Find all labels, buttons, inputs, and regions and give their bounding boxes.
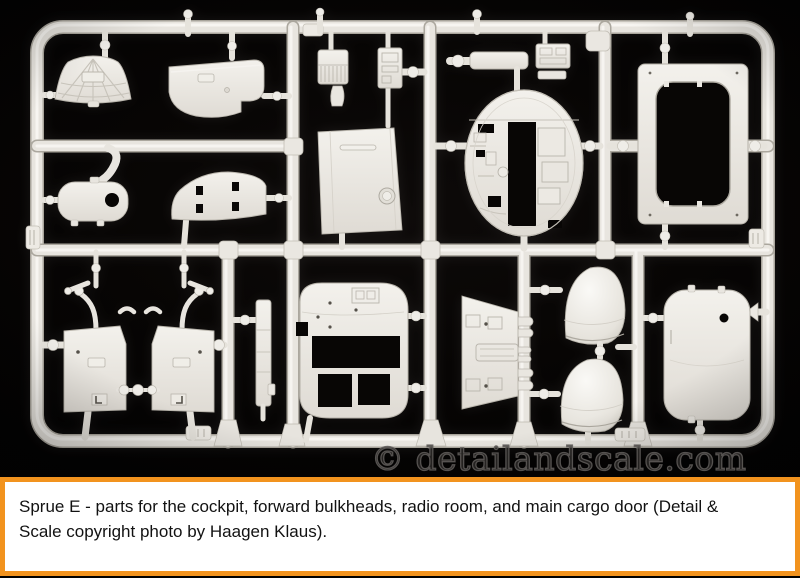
page: { "photo": { "watermark_text": "© detail… xyxy=(0,0,800,578)
cargo-door-part xyxy=(644,285,766,440)
upper-bulkhead-part xyxy=(169,33,289,117)
astrodome-lower-part xyxy=(530,344,634,442)
copyright-watermark: © detailandscale.com xyxy=(371,442,791,476)
cockpit-sidewall-left-part xyxy=(44,252,126,437)
radio-unit-part xyxy=(318,33,348,106)
side-strip-part xyxy=(234,300,275,419)
caption-line-1: Sprue E - parts for the cockpit, forward… xyxy=(19,495,781,520)
radio-floor-part xyxy=(172,172,289,246)
radio-stack-part xyxy=(378,33,424,126)
caption-box: Sprue E - parts for the cockpit, forward… xyxy=(0,477,800,576)
sprue-graphic xyxy=(0,0,800,477)
rear-bulkhead-part xyxy=(296,283,424,440)
astrodome-upper-part xyxy=(530,267,625,344)
caption-line-2: Scale copyright photo by Haagen Klaus). xyxy=(19,520,781,545)
caption-text: Sprue E - parts for the cockpit, forward… xyxy=(5,482,795,544)
cockpit-sidewall-right-part xyxy=(152,252,225,437)
equipment-box-part xyxy=(536,33,570,79)
cockpit-canopy-part xyxy=(44,33,131,107)
side-pod-part xyxy=(44,148,128,226)
roof-beam-part xyxy=(450,52,528,92)
sprue-photo: © detailandscale.com xyxy=(0,0,800,477)
fuselage-bulkhead-part xyxy=(436,90,600,248)
bulkhead-door-panel-part xyxy=(318,128,402,247)
